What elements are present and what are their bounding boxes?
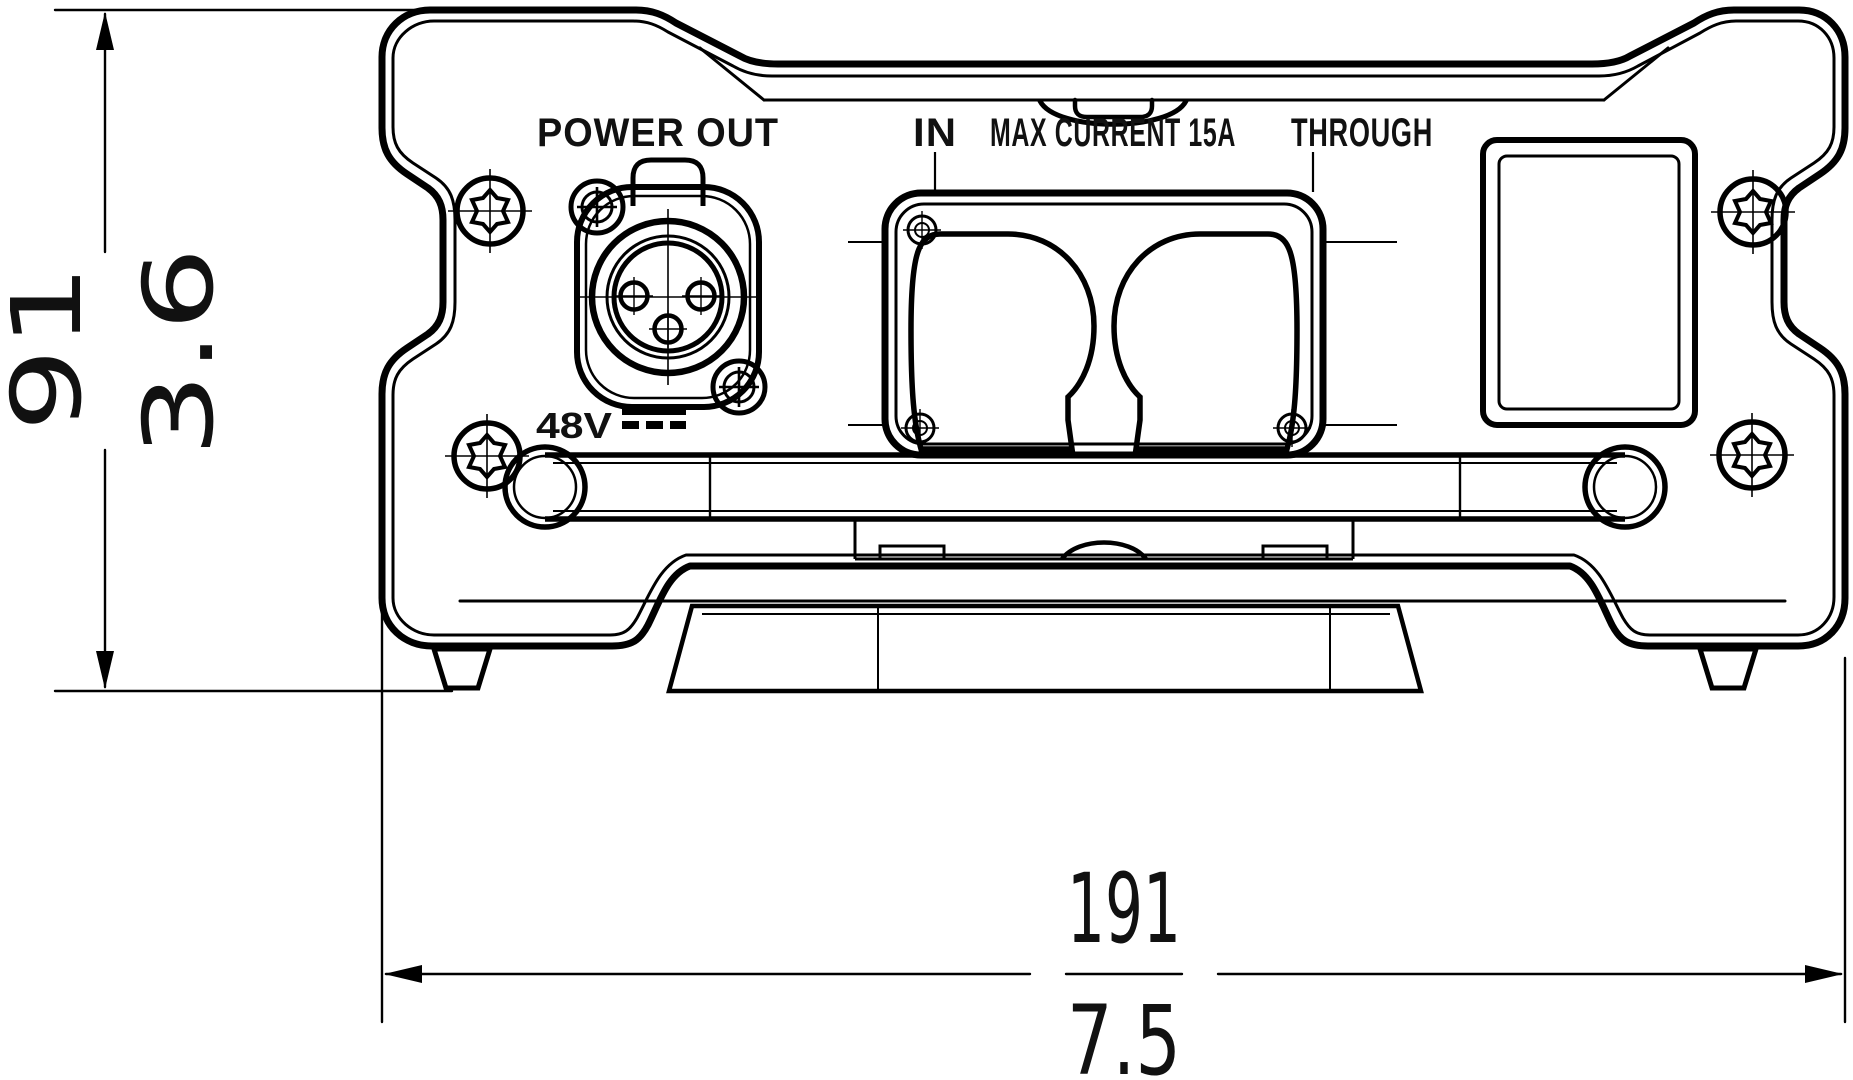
rear-panel-drawing: 91 3.6 191 7.5	[0, 0, 1853, 1080]
powercon-plate	[848, 152, 1397, 455]
arrow-right-icon	[1805, 965, 1843, 983]
handle-cap-left	[505, 447, 585, 527]
switch-rocker	[1499, 156, 1679, 409]
voltage-label: 48V	[536, 405, 612, 446]
handle-cap-right	[1585, 447, 1665, 527]
powercon-through-cutout	[1114, 234, 1297, 449]
panel-text-row: POWER OUT IN MAX CURRENT 15A THROUGH	[537, 111, 1433, 155]
plate-screw-bottom-left	[901, 409, 939, 447]
bracket-pad-left	[880, 546, 944, 559]
xlr-pin-bottom	[649, 310, 687, 348]
plate-screw-bottom-right	[1273, 409, 1311, 447]
arrow-down-icon	[96, 651, 114, 689]
torx-screw-bottom-right	[1710, 413, 1794, 497]
voltage-marking: 48V	[536, 405, 686, 446]
width-dimension: 191 7.5	[382, 612, 1845, 1080]
bracket-center-arch	[1062, 543, 1146, 560]
switch-bezel	[1483, 140, 1695, 425]
xlr-pin-right	[682, 277, 720, 315]
handle-cap-left-inner	[514, 456, 576, 518]
through-label: THROUGH	[1291, 111, 1433, 155]
powercon-in-cutout	[911, 234, 1094, 449]
handle-bar	[505, 447, 1665, 527]
corner-screws	[445, 169, 1795, 498]
power-switch	[1483, 140, 1695, 425]
foot-right	[1700, 649, 1756, 688]
rear-bracket	[669, 521, 1421, 691]
plate-screw-top-left	[903, 211, 941, 249]
height-in-label: 3.6	[123, 247, 235, 457]
arrow-left-icon	[384, 965, 422, 983]
dc-symbol-icon	[622, 411, 686, 425]
arrow-up-icon	[96, 12, 114, 50]
feet	[434, 649, 1756, 688]
stand-plate	[669, 606, 1421, 691]
handle-cap-right-inner	[1594, 456, 1656, 518]
bracket-pad-right	[1263, 546, 1327, 559]
in-label: IN	[913, 111, 957, 155]
height-mm-label: 91	[0, 264, 103, 432]
max-current-label: MAX CURRENT 15A	[990, 111, 1236, 155]
power-out-label: POWER OUT	[537, 111, 779, 155]
xlr-power-out-connector	[571, 160, 765, 413]
width-mm-label: 191	[1067, 853, 1181, 965]
width-in-label: 7.5	[1067, 985, 1181, 1080]
powercon-plate-inner	[896, 204, 1312, 444]
torx-screw-top-left	[448, 169, 532, 253]
xlr-pin-left	[615, 277, 653, 315]
xlr-latch-tab	[633, 160, 703, 206]
foot-left	[434, 649, 490, 688]
technical-drawing-page: 91 3.6 191 7.5	[0, 0, 1853, 1080]
